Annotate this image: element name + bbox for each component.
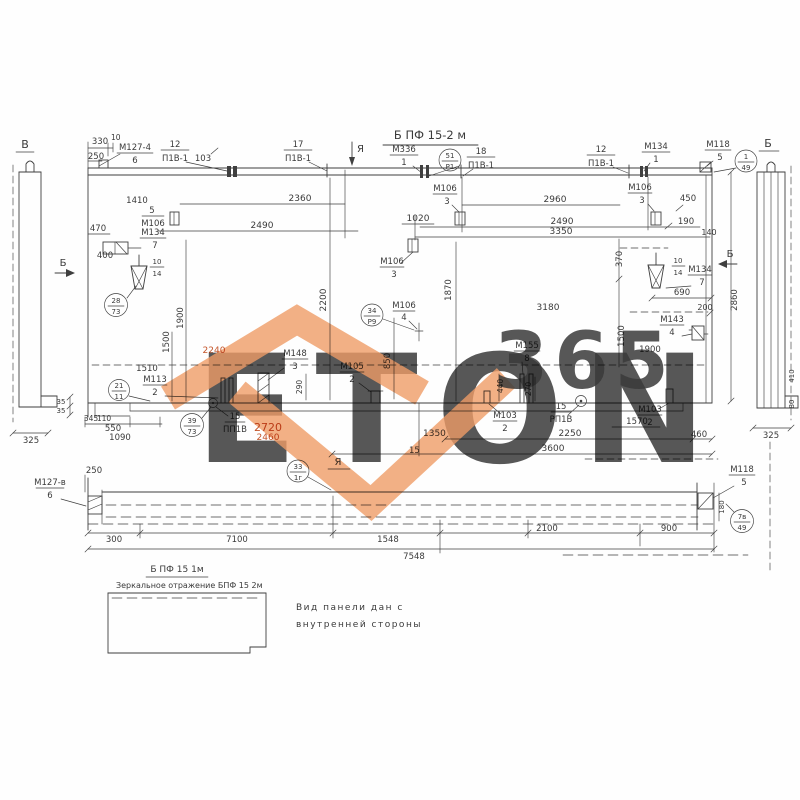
pos-label: 4 (401, 313, 406, 323)
lifting-loop-icon (767, 162, 775, 172)
dim-label: 103 (195, 154, 211, 164)
num-label: 12 (170, 140, 181, 150)
mark-label: М127-в (34, 478, 66, 488)
dim-690: 690 (649, 288, 714, 301)
plate-p1v-icon (233, 166, 237, 177)
cut-label: Б (727, 249, 734, 260)
ref-top: 10 (153, 258, 162, 266)
dim-label: 1548 (377, 535, 399, 545)
arrow-right-icon (66, 269, 75, 277)
arrow-left-icon (718, 260, 727, 268)
dim-label: 2360 (289, 194, 312, 204)
ref-top: 28 (112, 297, 121, 305)
pos-label: 7 (152, 241, 157, 251)
mark-label: М118 (730, 465, 754, 475)
dim-label: 450 (680, 194, 696, 204)
ref-bottom: 49 (738, 524, 747, 532)
dim-label: 690 (674, 288, 690, 298)
mark-label: М127-4 (119, 143, 151, 153)
ref-bottom: 14 (153, 270, 162, 278)
dim-label: 35 (57, 407, 66, 415)
lifting-funnel-icon (648, 265, 664, 288)
lifting-funnel-icon (131, 266, 147, 289)
pos-label: 3 (391, 270, 396, 280)
section-label-b: Б (764, 137, 772, 150)
plate-m134-icon (640, 166, 643, 177)
blueprint-sheet: В 325 Б 410 80 325 (0, 0, 800, 800)
callout-m106-3a: М106 3 (433, 184, 459, 212)
dim-label: 2960 (544, 195, 567, 205)
dims-upper: 1410 2360 2960 2490 1020 2490 3350 450 1… (88, 170, 717, 261)
mark-label: М336 (392, 145, 416, 155)
ref-bottom: 49 (742, 164, 751, 172)
ref-circle-28: 28 73 (105, 286, 137, 317)
mark-label: П1В-1 (285, 154, 311, 164)
arrow-down-icon (349, 157, 355, 166)
anchor-m106-icon (455, 212, 465, 225)
drawing-title: Б ПФ 15-2 м (383, 128, 478, 145)
pos-label: 5 (717, 153, 722, 163)
pos-label: 5 (741, 478, 746, 488)
pos-label: 1 (653, 155, 658, 165)
dim-1510: 1510 (136, 364, 158, 374)
dim-3180: 3180 (537, 303, 560, 313)
dim-label: 400 (97, 251, 113, 261)
dim-label: 1510 (136, 364, 158, 374)
dim-label: 2100 (536, 524, 558, 534)
dim-label: 140 (701, 228, 716, 237)
dim-label: 3180 (537, 303, 560, 313)
dim-label: 1870 (444, 279, 454, 301)
dim-label: 200 (697, 303, 712, 312)
ref-top: 1 (744, 153, 748, 161)
ref-top: 7в (738, 513, 747, 521)
dim-label: 325 (23, 436, 39, 446)
alt-title: Б ПФ 15 1м (150, 565, 203, 575)
callout-m127-bottom: М127-в 6 (34, 478, 86, 506)
dim-label: 325 (763, 431, 779, 441)
dim-label: 80 (788, 400, 796, 409)
ref-circle-51: 51 Р1 (429, 149, 461, 176)
pos-label: 3 (444, 197, 449, 207)
cut-arrow-right: Б (718, 249, 737, 268)
mark-label: П1В-1 (162, 154, 188, 164)
pos-label: 5 (149, 206, 154, 216)
view-label: Я (357, 144, 364, 155)
callout-p1v-c: 18 П1В-1 (463, 147, 495, 176)
dim-label: 250 (88, 152, 104, 162)
note-line-1: Вид панели дан с (296, 603, 404, 613)
mark-label: М134 (688, 265, 712, 275)
mirror-sketch-block: Б ПФ 15 1м Зеркальное отражение БПФ 15 2… (108, 565, 266, 653)
dim-label: 2860 (730, 289, 740, 311)
dim-200: 200 (697, 303, 713, 316)
view-arrow-ya: Я (349, 142, 364, 166)
dim-label: 2490 (551, 217, 574, 227)
pos-label: 6 (132, 156, 137, 166)
mark-label: М106 (380, 257, 404, 267)
section-label-v: В (21, 138, 29, 151)
plate-p1v-icon (227, 166, 231, 177)
anchor-m106-icon (408, 239, 418, 252)
dim-label: 1900 (176, 307, 186, 329)
bottom-view-dims: 300 7100 1548 2100 900 7548 (85, 496, 748, 562)
callout-m106-3b: М106 3 (380, 252, 413, 280)
ref-top: 34 (368, 307, 377, 315)
pos-label: 6 (47, 491, 52, 501)
mark-label: М113 (143, 375, 167, 385)
dim-label: 1410 (126, 196, 148, 206)
cut-label: Б (60, 258, 67, 269)
dim-label: 1500 (162, 331, 172, 353)
dim-label: 330 (92, 137, 108, 147)
ref-circle-7v: 7в 49 (726, 504, 754, 533)
anchor-m106-icon (170, 212, 179, 225)
pos-label: 3 (639, 196, 644, 206)
callout-m134-7-left: М134 7 (128, 228, 166, 251)
callout-m106-5: 5 М106 (141, 206, 165, 229)
ref-bottom: 11 (115, 393, 124, 401)
side-note: Вид панели дан с внутренней стороны (296, 603, 422, 630)
dim-label: 180 (718, 500, 726, 513)
frac-10-14-left: 10 14 (150, 258, 164, 278)
panel-drawing: В 325 Б 410 80 325 (0, 0, 800, 800)
dim-label: 3350 (550, 227, 573, 237)
callout-p1v-d: 12 П1В-1 (587, 145, 628, 173)
callout-m106-3c: М106 3 (628, 183, 654, 211)
mirror-note: Зеркальное отражение БПФ 15 2м (116, 581, 263, 590)
callout-p1v-b: 17 П1В-1 (284, 140, 327, 171)
ref-top: 10 (674, 257, 683, 265)
ref-top: 51 (446, 152, 455, 160)
callout-m336: М336 1 (390, 145, 422, 173)
dim-label: 190 (678, 217, 694, 227)
lifting-loop-icon (26, 161, 34, 172)
dim-label: 1090 (109, 433, 131, 443)
dim-label: 110 (97, 414, 112, 423)
dim-label: 470 (90, 224, 106, 234)
dim-label: 7548 (403, 552, 425, 562)
page-title: Б ПФ 15-2 м (394, 128, 466, 142)
mark-label: П1В-1 (588, 159, 614, 169)
mark-label: М106 (433, 184, 457, 194)
dim-label: 2490 (251, 221, 274, 231)
note-line-2: внутренней стороны (296, 620, 422, 630)
plate-m336-icon (426, 165, 429, 178)
mark-label: М118 (706, 140, 730, 150)
num-label: 17 (293, 140, 304, 150)
mark-label: М106 (392, 301, 416, 311)
dim-label: 300 (106, 535, 122, 545)
mark-label: М134 (141, 228, 165, 238)
num-label: 12 (596, 145, 607, 155)
pos-label: 7 (699, 278, 704, 288)
watermark-digits: 365 (494, 317, 675, 407)
ref-bottom: 14 (674, 269, 683, 277)
frac-10-14-right: 10 14 (672, 257, 685, 277)
anchor-m106-icon (651, 212, 661, 225)
pos-label: 2 (152, 388, 157, 398)
dim-label: 250 (86, 466, 102, 476)
num-label: 18 (476, 147, 487, 157)
pos-label: 1 (401, 158, 406, 168)
cut-arrow-left: Б (55, 258, 75, 277)
dim-label: 370 (615, 251, 625, 267)
dim-label: 7100 (226, 535, 248, 545)
dim-label: 10 (111, 133, 121, 142)
dim-label: 35 (57, 398, 66, 406)
right-section-view: Б 410 80 325 (750, 137, 798, 441)
dim-label: 1020 (407, 214, 430, 224)
ref-bottom: 73 (112, 308, 121, 316)
left-section-view: В 325 (10, 138, 57, 446)
mark-label: М106 (628, 183, 652, 193)
dim-label: 410 (788, 369, 796, 382)
mark-label: М134 (644, 142, 668, 152)
watermark: ETON 365 (168, 317, 725, 503)
dim-103: 103 (195, 148, 218, 164)
ref-top: 21 (115, 382, 124, 390)
dim-label: 2200 (319, 288, 329, 311)
dim-label: 900 (661, 524, 677, 534)
dims-left-bottom: 35 35 345 110 550 1090 (57, 394, 162, 443)
